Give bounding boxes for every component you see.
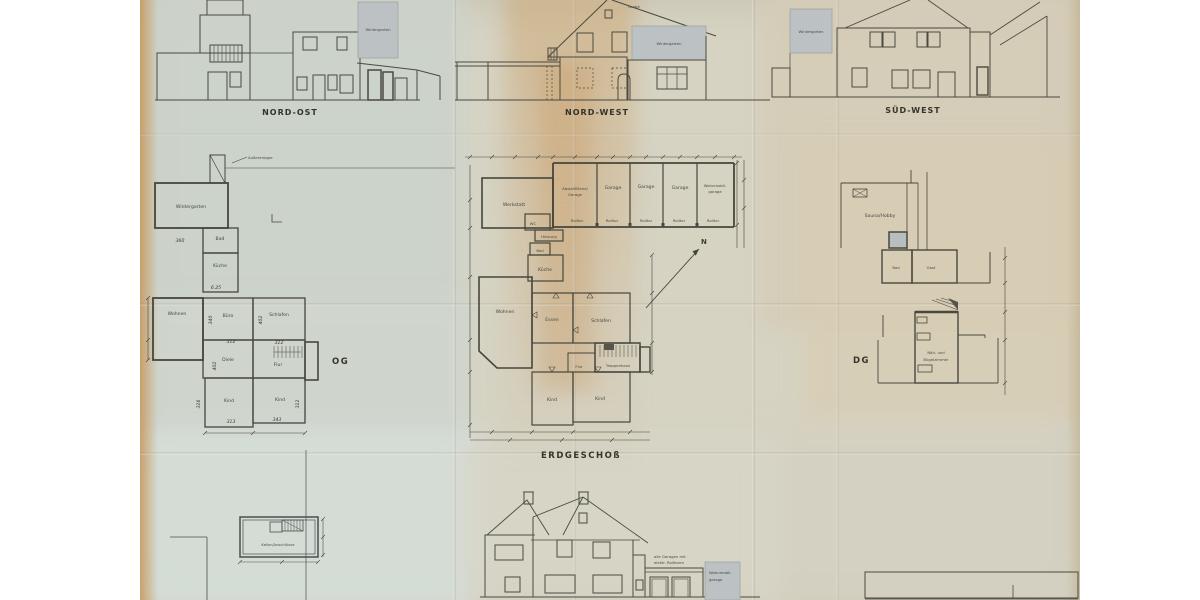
eg-rolltor-3: Rolltor [640,218,653,223]
eg-room-wohnmobil-1: Wohnmobil- [704,183,727,188]
eg-room-kind-2: Kind [595,396,605,402]
og-dim-402-b: 402 [212,362,218,371]
eg-rolltor-4: Rolltor [673,218,686,223]
elevation-sued-ost-drawing [480,492,760,600]
eg-title: ERDGESCHOß [541,451,621,461]
garage-note-line-1: alle Garagen mit [654,554,686,559]
elevation-sued-west-drawing [772,0,1060,97]
eg-room-treppenhaus: Treppenhaus [605,363,630,368]
plan-og-drawing [146,155,455,435]
og-dim-312-c: 312 [295,400,301,409]
dg-title: DG [853,356,870,366]
og-dim-312-a: 312 [227,339,236,345]
dg-room-naeh-1: Näh- und [927,350,945,355]
og-room-buero: Büro [223,313,234,319]
eg-room-bad: Bad [536,248,544,253]
nord-west-wintergarten-label: Wintergarten [657,41,683,46]
og-dim-340: 340 [208,316,214,325]
dg-room-gast: Gast [927,265,936,270]
eg-north-label: N [701,238,707,246]
og-room-wohnen: Wohnen [168,311,187,317]
og-dim-313: 313 [227,419,236,425]
eg-room-kueche: Küche [538,267,552,273]
dg-room-bad: Bad [892,265,900,270]
elevation-nord-west-drawing [455,0,770,100]
nord-west-laube-label: Laube [628,4,640,9]
eg-rolltor-2: Rolltor [606,218,619,223]
eg-room-werkstatt: Werkstatt [503,202,525,208]
scanned-blueprint-page: Wintergarten NORD-OST [0,0,1200,600]
eg-room-garage-1: Garage [605,185,622,191]
eg-room-essen: Essen [545,317,559,323]
og-dim-625: 6.25 [211,285,221,291]
og-room-flur: Flur [274,362,283,368]
eg-room-schlafen: Schlafen [591,318,611,324]
eg-room-wohnmobil-2: garage [708,189,722,194]
eg-room-abstell-1: Abstellfläche/ [562,186,588,191]
eg-room-heizung: Heizung [541,234,557,239]
drawing-linework: Wintergarten NORD-OST [140,0,1080,600]
nord-ost-title: NORD-OST [262,108,318,117]
og-dim-312-b: 312 [275,340,284,346]
eg-room-flur: Flur [575,364,583,369]
og-dim-360: 360 [176,238,185,244]
elevation-nord-ost-drawing [155,0,440,100]
nord-west-title: NORD-WEST [565,108,629,117]
eg-room-kind-1: Kind [547,397,557,403]
og-dim-402-a: 402 [258,316,264,325]
og-room-schlafen: Schlafen [269,312,289,318]
eg-rolltor-1: Rolltor [571,218,584,223]
wohnmobilgarage-label-2: garage [709,577,723,582]
eg-room-wc: WC [530,221,537,226]
dg-room-sauna: Sauna/Hobby [865,213,896,219]
dg-room-naeh-2: Bügelzimmer [923,357,949,362]
eg-room-wohnen: Wohnen [496,309,515,315]
bottom-right-partial-drawing [865,572,1078,599]
og-room-kind-1: Kind [224,398,234,404]
og-dim-343: 343 [273,417,282,423]
eg-room-garage-2: Garage [638,184,655,190]
sued-west-title: SÜD-WEST [885,105,941,115]
site-corner-mark [272,214,282,222]
og-room-diele: Diele [222,357,234,363]
keller-room-label: Keller/Anschlüsse [261,542,295,547]
eg-room-garage-3: Garage [672,185,689,191]
og-room-wintergarten: Wintergarten [176,204,206,210]
eg-rolltor-5: Rolltor [707,218,720,223]
wohnmobilgarage-label-1: Wohnmobil- [709,570,732,575]
og-room-bad: Bad [216,236,225,242]
nord-ost-wintergarten-label: Wintergarten [366,27,392,32]
og-room-kueche: Küche [213,263,227,269]
blueprint-photo: Wintergarten NORD-OST [140,0,1080,600]
og-dim-316: 316 [196,400,202,409]
eg-room-abstell-2: Garage [568,192,583,197]
sued-west-wintergarten-label: Wintergarten [799,29,825,34]
garage-note-line-2: elektr. Rolltoren [654,560,685,565]
og-room-kind-2: Kind [275,397,285,403]
og-aussentreppe-label: Außentreppe [248,155,273,160]
plan-eg-drawing [465,155,746,442]
plan-keller-drawing [170,450,325,600]
og-title: OG [332,357,349,367]
